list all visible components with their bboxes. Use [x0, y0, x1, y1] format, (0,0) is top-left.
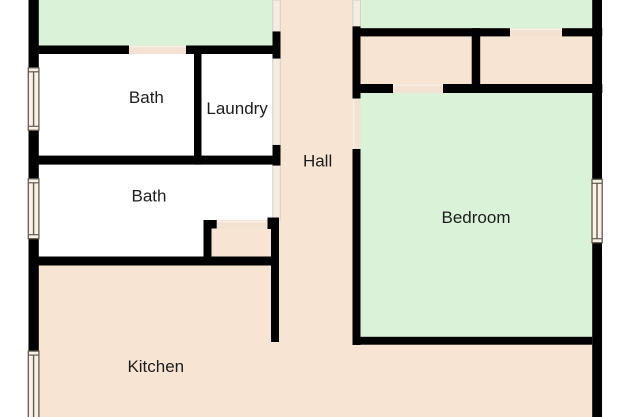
svg-text:Kitchen: Kitchen: [127, 357, 184, 376]
svg-text:Hall: Hall: [303, 152, 332, 171]
svg-text:Laundry: Laundry: [206, 99, 268, 118]
svg-text:Bath: Bath: [129, 88, 164, 107]
svg-text:Bedroom: Bedroom: [442, 208, 511, 227]
svg-text:Bath: Bath: [132, 187, 167, 206]
